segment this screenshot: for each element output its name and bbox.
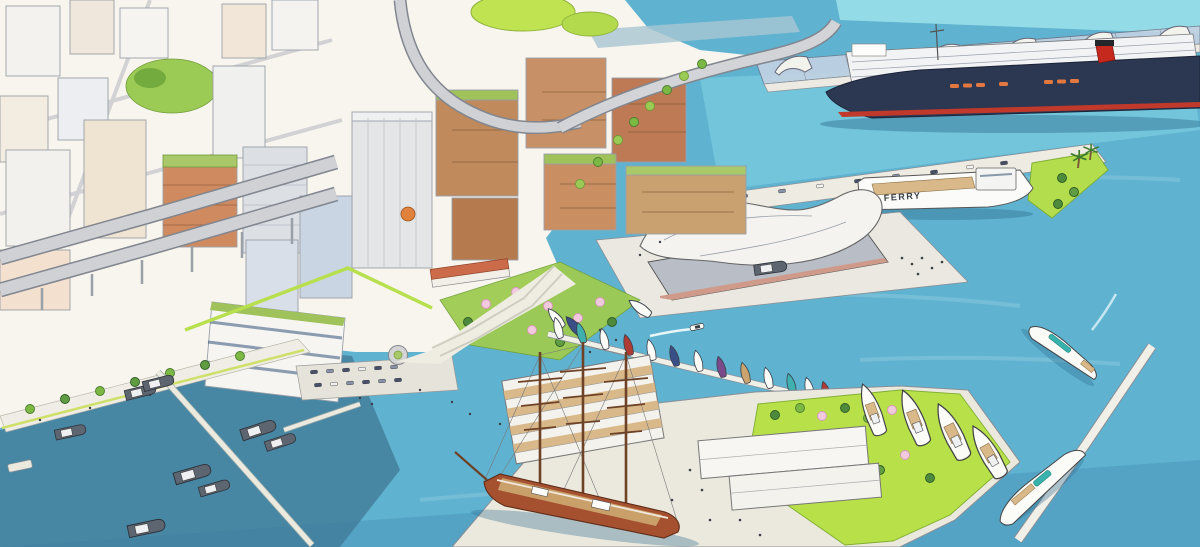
city-park: [126, 59, 218, 113]
cruise-funnel: [1096, 44, 1115, 63]
timber-block-b: [452, 198, 518, 260]
orange-pavilion: [401, 207, 415, 221]
blue-glass-midrise: [246, 240, 298, 312]
city-park-grove: [134, 68, 166, 88]
hill-park: [471, 0, 575, 31]
waterfront-rendering: FERRY: [0, 0, 1200, 547]
hill-park-lawn: [562, 12, 618, 36]
central-gray-tower: [352, 118, 432, 268]
terracotta-tower-roof-garden: [163, 155, 237, 167]
cruise-bridge: [852, 44, 886, 56]
rowhouse-roofs: [626, 166, 746, 175]
timber-block-d: [544, 160, 616, 230]
timber-block-c: [526, 58, 606, 148]
ferry-cabin: [976, 168, 1016, 190]
central-gray-tower-cap: [352, 112, 432, 121]
timber-block-d-roof: [544, 154, 616, 164]
cruise-funnel-cap: [1095, 40, 1114, 46]
timber-rowhouses: [626, 172, 746, 234]
